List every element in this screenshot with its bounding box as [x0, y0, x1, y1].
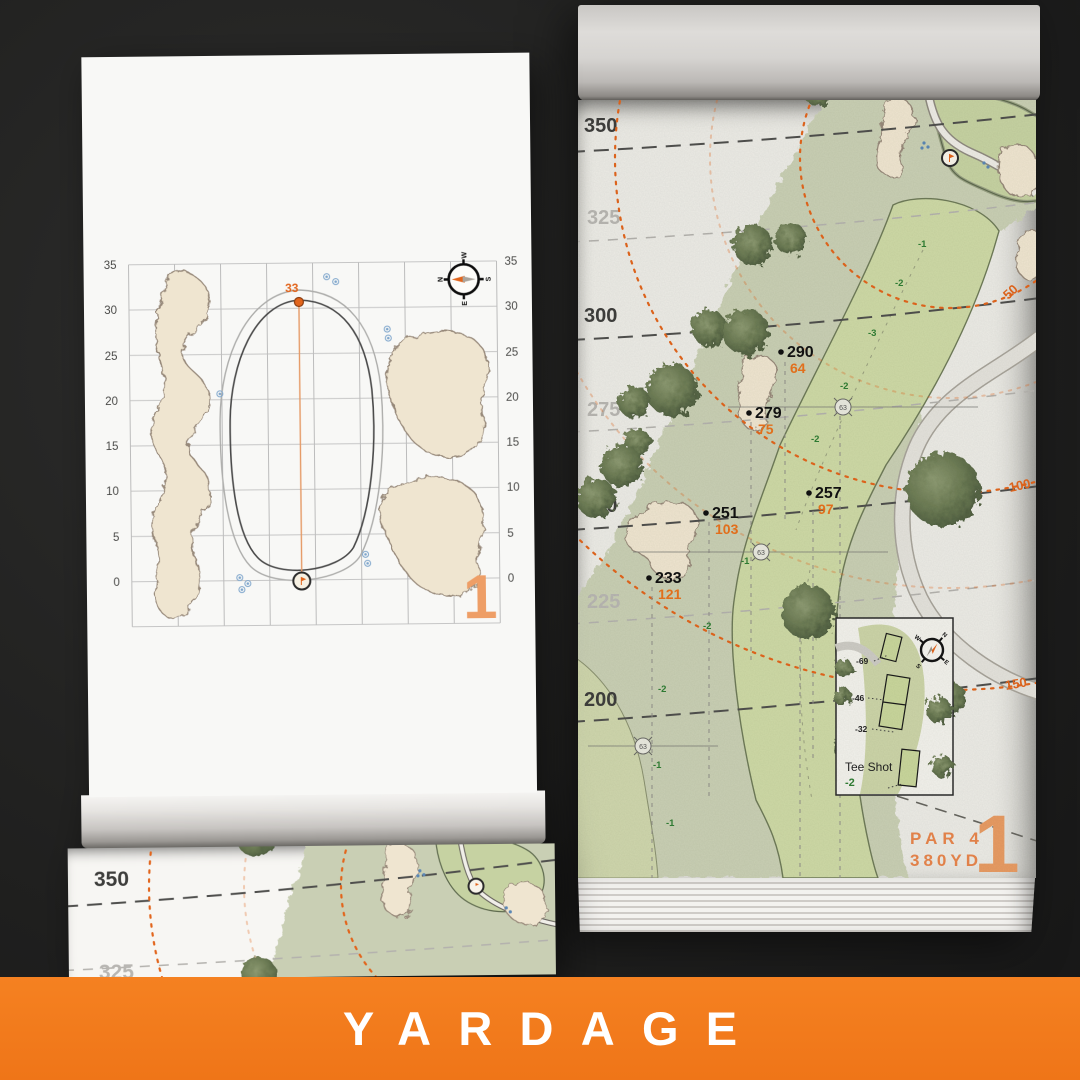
left-page-stack: 350 325 35: [0, 0, 1080, 1080]
axis-label: 15: [506, 437, 519, 449]
axis-label: 5: [507, 528, 514, 540]
axis-label: 20: [506, 392, 519, 404]
axis-label: 10: [507, 482, 520, 494]
compass-n: N: [438, 277, 445, 282]
sprinkler-dots: [216, 273, 394, 593]
axis-labels-right: 35 30 25 20 15 10 5 0: [504, 256, 520, 585]
axis-label: 35: [104, 260, 117, 272]
green-detail-map: 35 30 25 20 15 10 5 0 35 30 25 20 15 10 …: [95, 246, 539, 643]
compass-w: W: [461, 252, 468, 259]
axis-label: 0: [113, 577, 120, 589]
yardage-book-mockup: 350 325 300 275 250 225 200 5: [0, 0, 1080, 1080]
green-detail-page: 35 30 25 20 15 10 5 0 35 30 25 20 15 10 …: [81, 53, 537, 798]
pin-dot: [294, 297, 303, 306]
pin-line: 33: [285, 281, 306, 581]
axis-label: 20: [105, 396, 118, 408]
yardage-banner: YARDAGE: [0, 977, 1080, 1080]
next-hole-page: 350 325: [68, 843, 556, 979]
axis-label: 15: [106, 441, 119, 453]
compass-icon: N W S E: [437, 251, 493, 306]
axis-label: 5: [113, 532, 120, 544]
axis-label: 35: [504, 256, 517, 268]
page-curl: [81, 790, 546, 848]
flag-icon: [293, 572, 310, 589]
axis-label: 25: [105, 351, 118, 363]
yardage-banner-label: YARDAGE: [316, 1001, 765, 1056]
axis-label: 30: [505, 301, 518, 313]
compass-s: S: [486, 276, 493, 281]
axis-label: 10: [106, 486, 119, 498]
pin-distance: 33: [285, 281, 299, 295]
axis-labels-left: 35 30 25 20 15 10 5 0: [104, 260, 120, 589]
hole-number: 1: [463, 563, 498, 632]
axis-label: 0: [508, 573, 515, 585]
next-hole-map: 350 325: [68, 843, 556, 979]
trees: [235, 843, 277, 979]
bunkers: [149, 268, 491, 618]
tee-label-350: 350: [94, 868, 129, 891]
compass-e: E: [462, 301, 469, 306]
flag-icon: [468, 879, 483, 894]
axis-label: 30: [104, 305, 117, 317]
axis-label: 25: [505, 347, 518, 359]
